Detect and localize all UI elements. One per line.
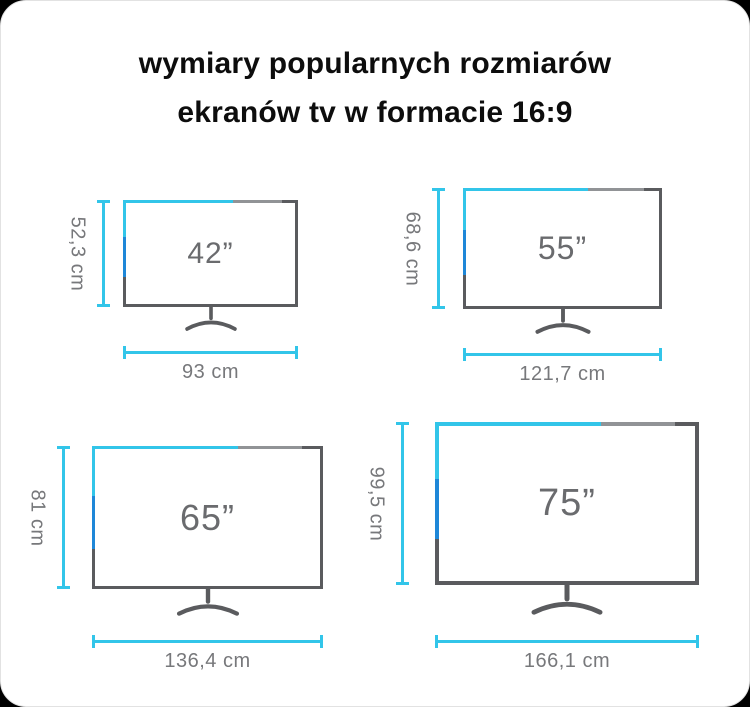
tv-size-label: 75” [538, 482, 596, 525]
infographic-card: wymiary popularnych rozmiarów ekranów tv… [0, 0, 750, 707]
width-label: 166,1 cm [524, 650, 610, 673]
tv-screen: 75” [435, 422, 699, 585]
top-edge-light-gray-segment [601, 422, 675, 426]
tv-stand-icon [527, 584, 607, 616]
left-edge-blue-highlight [435, 479, 439, 539]
tv-figure-75-inch: 99,5 cm 75” 166,1 cm [1, 1, 749, 706]
top-edge-cyan-highlight [435, 422, 601, 426]
left-edge-cyan-highlight [435, 422, 439, 479]
height-label: 99,5 cm [365, 466, 388, 541]
height-dimension-line [401, 422, 404, 585]
width-dimension-line [435, 640, 699, 643]
stand-base [534, 604, 600, 612]
